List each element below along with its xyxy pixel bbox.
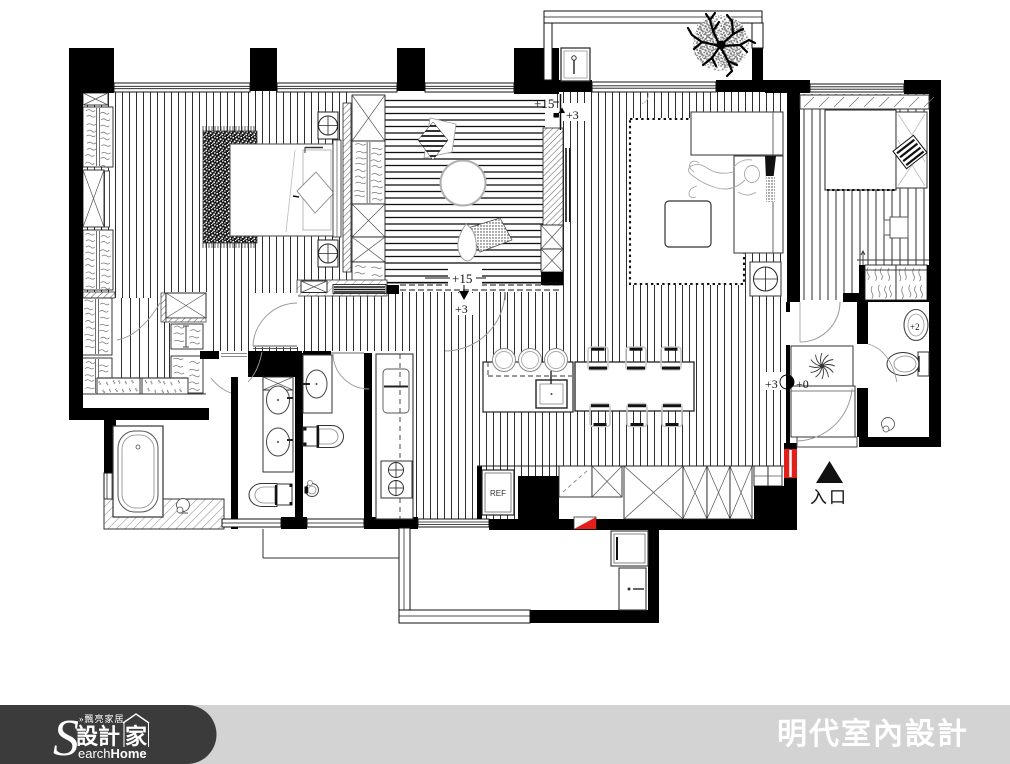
svg-text:入口: 入口 bbox=[810, 488, 848, 507]
svg-text:+0: +0 bbox=[796, 377, 809, 391]
svg-text:earchHome: earchHome bbox=[78, 746, 147, 761]
svg-text:+15: +15 bbox=[534, 96, 554, 111]
svg-text:+3: +3 bbox=[765, 377, 778, 391]
svg-text:明代室內設計: 明代室內設計 bbox=[777, 717, 969, 751]
svg-text:»飄亮家居: »飄亮家居 bbox=[79, 713, 125, 724]
svg-text:+15: +15 bbox=[452, 271, 472, 286]
svg-text:+2: +2 bbox=[910, 322, 920, 332]
svg-text:+3: +3 bbox=[455, 302, 468, 316]
svg-text:+3: +3 bbox=[566, 108, 579, 122]
svg-text:REF: REF bbox=[490, 489, 506, 498]
